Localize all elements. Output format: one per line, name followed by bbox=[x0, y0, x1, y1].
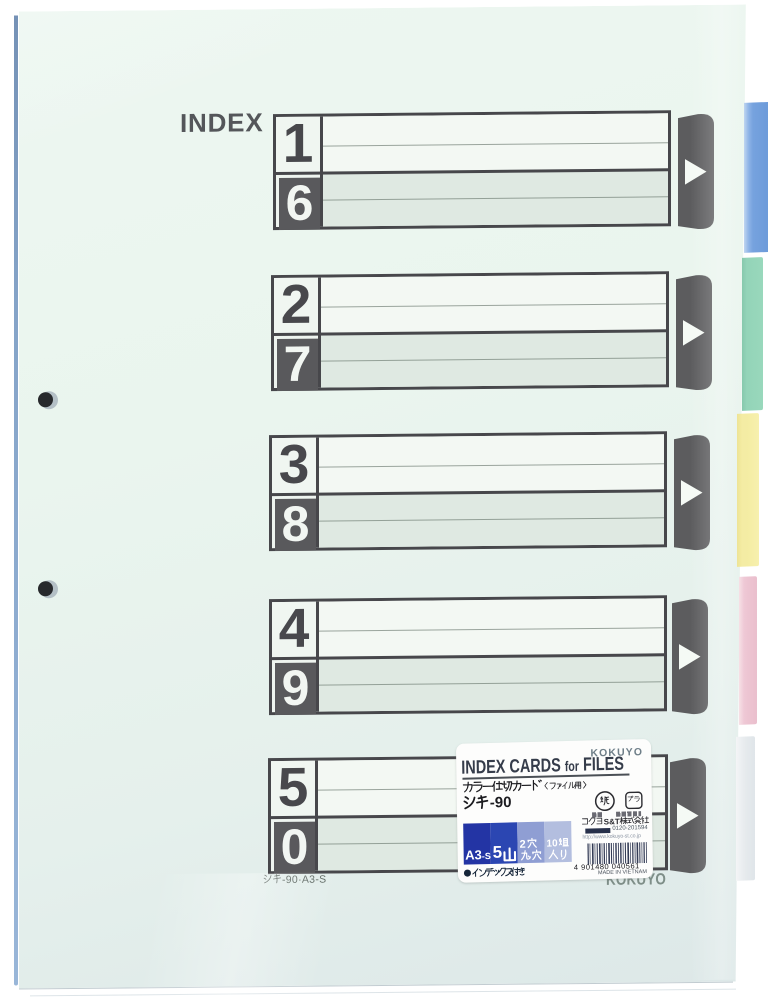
svg-text:-90: -90 bbox=[490, 794, 512, 812]
svg-text:-90·A3-S: -90·A3-S bbox=[282, 874, 326, 886]
svg-text:10: 10 bbox=[546, 838, 558, 849]
svg-text:2: 2 bbox=[519, 839, 525, 851]
